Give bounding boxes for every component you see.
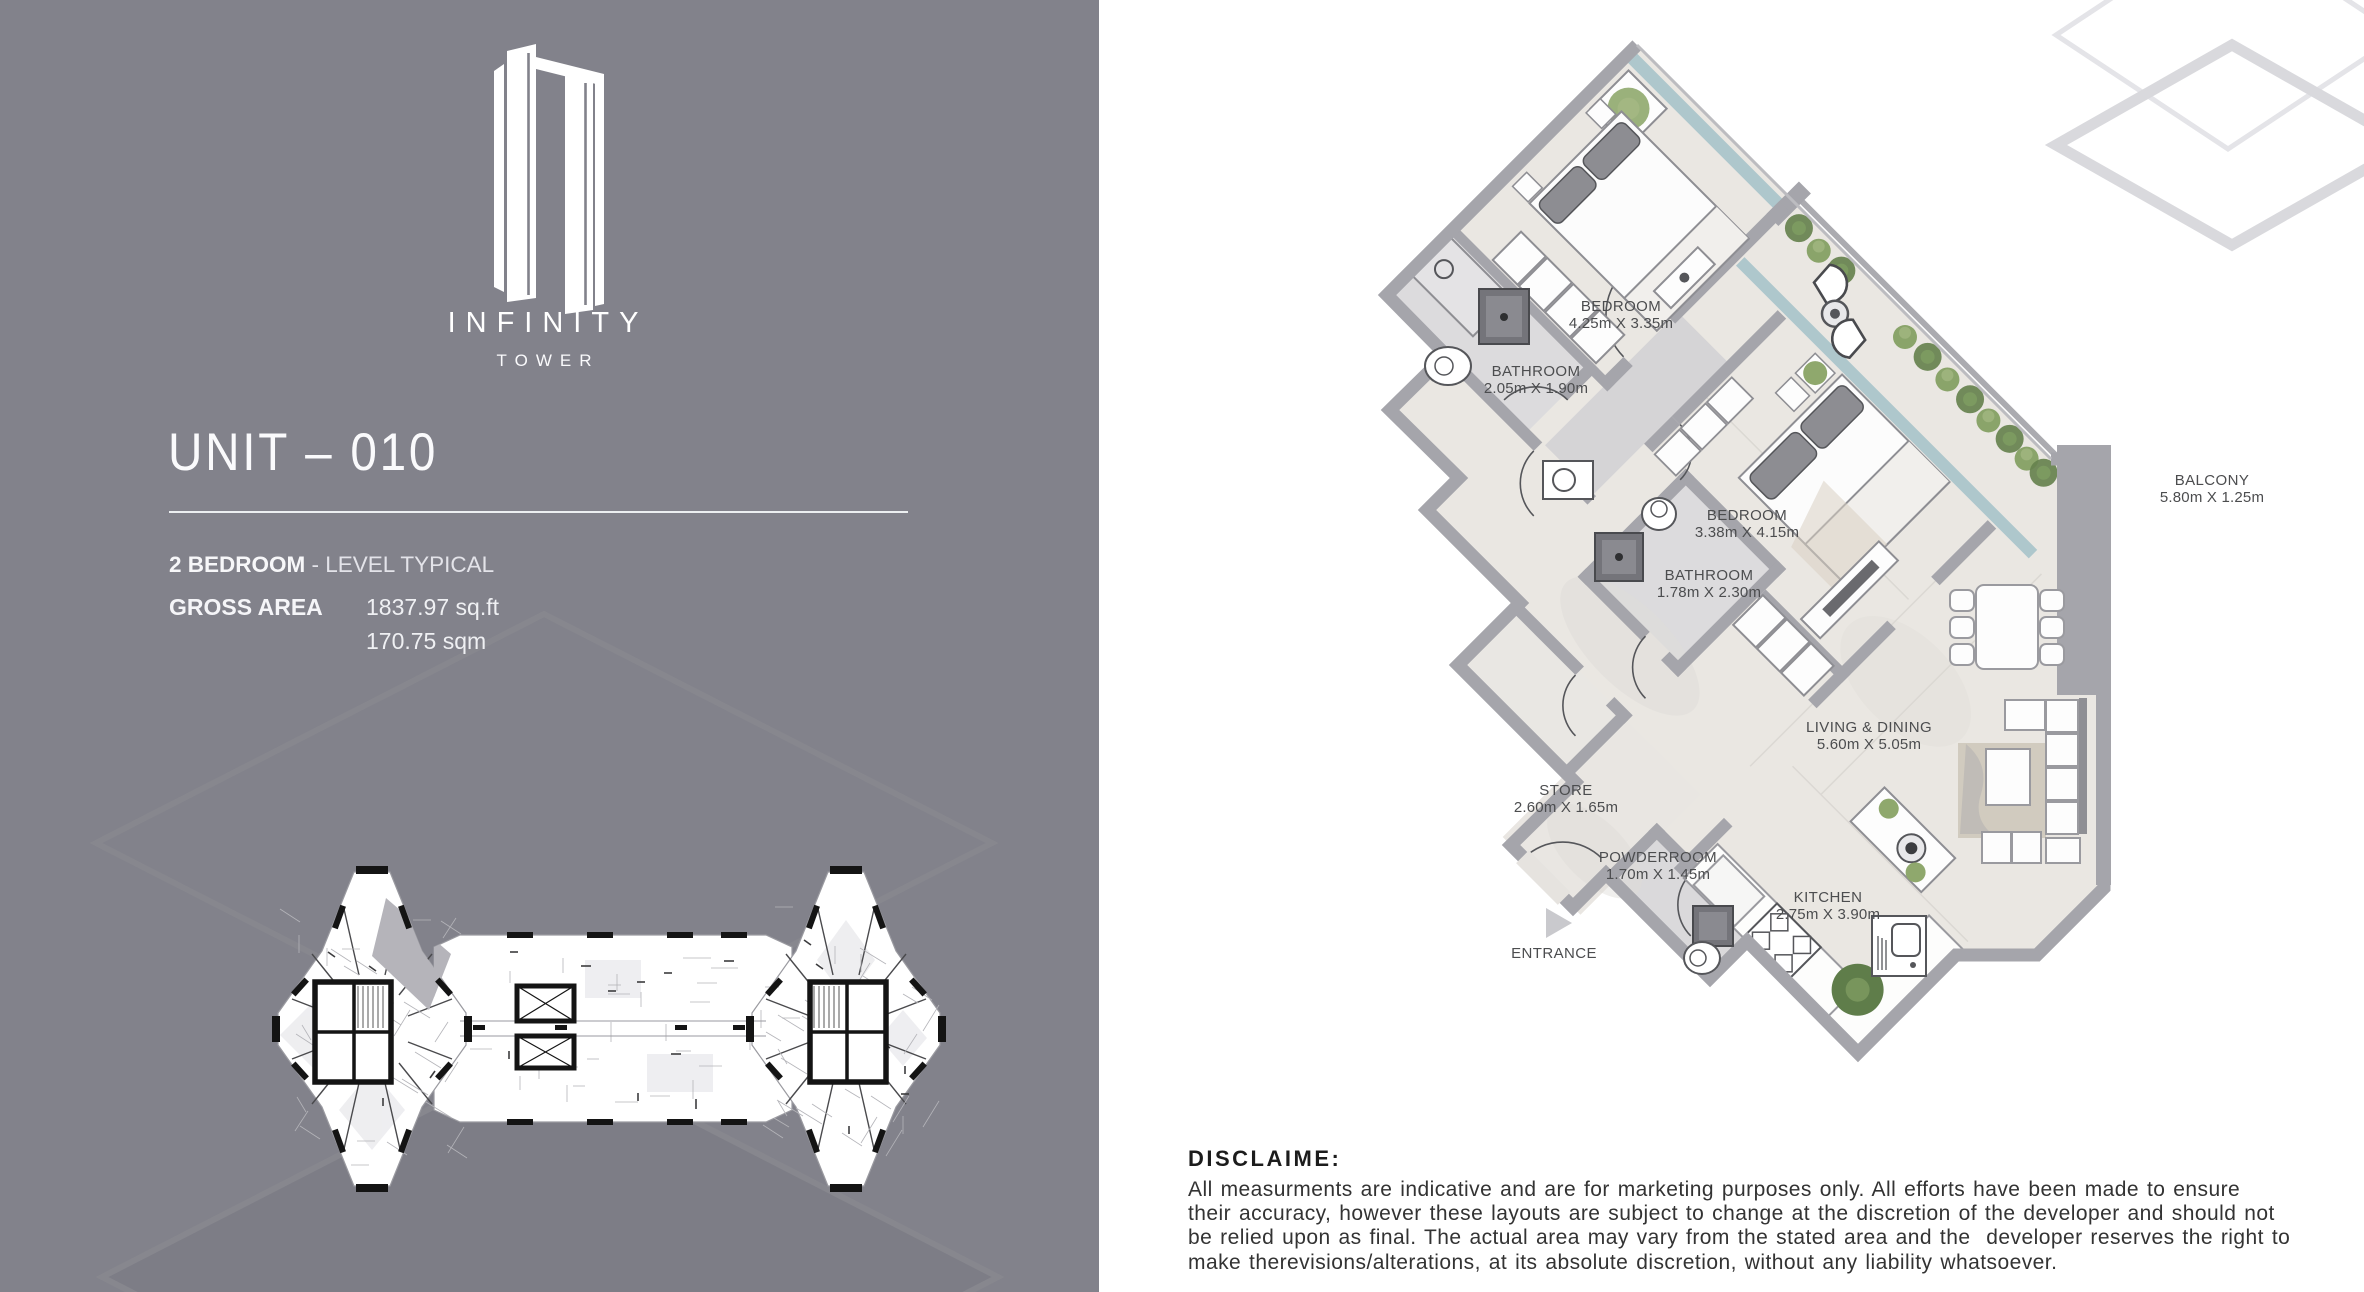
svg-text:POWDERROOM: POWDERROOM — [1599, 849, 1717, 866]
svg-text:5.60m X 5.05m: 5.60m X 5.05m — [1817, 736, 1921, 753]
svg-text:1.70m X 1.45m: 1.70m X 1.45m — [1606, 866, 1710, 883]
svg-text:STORE: STORE — [1539, 782, 1592, 799]
svg-text:BATHROOM: BATHROOM — [1492, 363, 1581, 380]
svg-text:BALCONY: BALCONY — [2175, 472, 2250, 489]
svg-text:BEDROOM: BEDROOM — [1581, 298, 1661, 315]
svg-text:2.75m X 3.90m: 2.75m X 3.90m — [1776, 906, 1880, 923]
svg-text:2.60m X 1.65m: 2.60m X 1.65m — [1514, 799, 1618, 816]
svg-text:3.38m X 4.15m: 3.38m X 4.15m — [1695, 524, 1799, 541]
svg-text:BATHROOM: BATHROOM — [1665, 567, 1754, 584]
svg-text:KITCHEN: KITCHEN — [1794, 889, 1863, 906]
svg-text:ENTRANCE: ENTRANCE — [1511, 945, 1597, 962]
svg-text:BEDROOM: BEDROOM — [1707, 507, 1787, 524]
svg-text:LIVING & DINING: LIVING & DINING — [1806, 719, 1932, 736]
svg-text:5.80m X 1.25m: 5.80m X 1.25m — [2160, 489, 2264, 506]
svg-text:1.78m X 2.30m: 1.78m X 2.30m — [1657, 584, 1761, 601]
svg-text:2.05m X 1.90m: 2.05m X 1.90m — [1484, 380, 1588, 397]
svg-text:4.25m X 3.35m: 4.25m X 3.35m — [1569, 315, 1673, 332]
